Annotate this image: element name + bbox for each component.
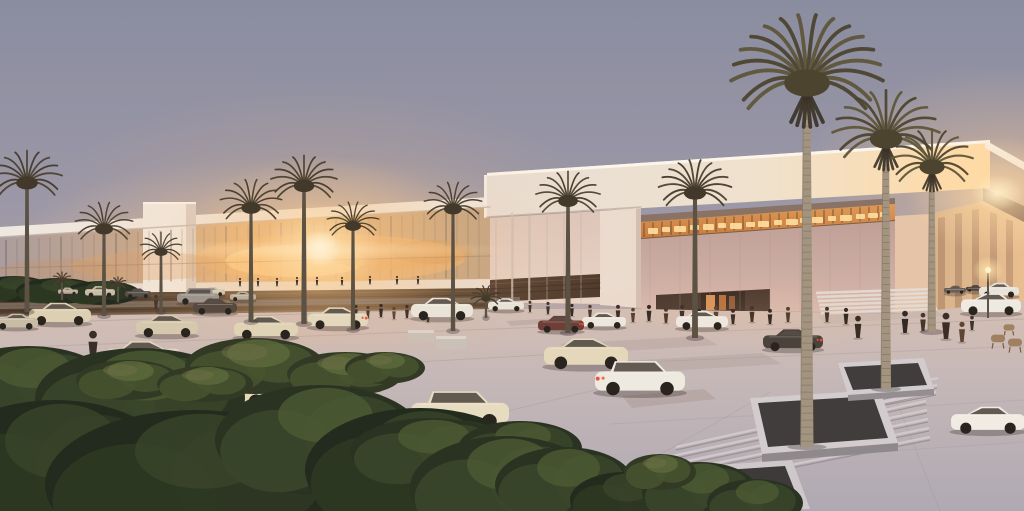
car-wheel <box>89 293 94 298</box>
car-wheel <box>128 294 132 298</box>
person-head <box>276 278 278 280</box>
car-windows <box>187 289 210 293</box>
car-wheel <box>73 292 76 295</box>
person-head <box>680 305 684 309</box>
palm-crown-center <box>241 202 260 214</box>
palm-crown-center <box>482 296 491 301</box>
car-wheel <box>968 289 971 292</box>
taillight <box>581 323 584 326</box>
planter-gravel <box>758 396 888 447</box>
person-head <box>921 313 926 318</box>
person-head <box>89 331 97 339</box>
glow <box>971 175 1023 211</box>
car-wheel <box>456 311 465 320</box>
bush-top <box>736 480 779 504</box>
person-shadow <box>378 317 384 318</box>
window-light <box>786 219 798 225</box>
person-head <box>731 309 735 313</box>
taillight <box>596 377 600 381</box>
person-head <box>902 311 908 317</box>
car-wheel <box>660 382 674 396</box>
mall-sunset-rendering <box>0 0 1024 511</box>
car-wheel <box>683 322 691 330</box>
car-wheel <box>771 342 780 351</box>
palm-crown-center <box>684 186 706 199</box>
bush-rim-light <box>103 364 137 376</box>
car-wheel <box>960 291 963 294</box>
window-light <box>746 222 755 227</box>
person-shadow <box>340 285 344 286</box>
person-shadow <box>256 286 260 287</box>
chair-back <box>1004 324 1015 330</box>
person-head <box>768 309 772 313</box>
person-head <box>970 316 974 320</box>
person-shadow <box>395 284 399 285</box>
scene: Architectural rendering of a modern shop… <box>0 0 1024 511</box>
car-wheel <box>514 306 519 311</box>
car-wheel <box>199 308 206 315</box>
person-shadow <box>730 324 737 326</box>
palm-crown-center <box>154 248 167 256</box>
car-wheel <box>144 328 153 337</box>
palm-crown-center <box>345 221 361 231</box>
car-wheel <box>181 328 190 337</box>
window-light <box>703 224 714 230</box>
person-head <box>366 306 369 309</box>
planter <box>750 390 898 462</box>
palm-crown-center <box>558 195 578 207</box>
person-shadow <box>315 285 319 286</box>
person-shadow <box>391 319 396 320</box>
taillight <box>602 377 605 380</box>
car-wheel <box>493 306 498 311</box>
car-wheel <box>947 291 950 294</box>
window-light <box>758 221 769 227</box>
car-wheel <box>280 330 290 340</box>
person-head <box>316 277 318 279</box>
taillight <box>362 317 364 319</box>
person-head <box>844 308 848 312</box>
car-wheel <box>614 322 621 329</box>
car-wheel <box>242 330 252 340</box>
window-light <box>674 226 686 232</box>
person-head <box>855 316 861 322</box>
person-head <box>396 276 398 278</box>
person-head <box>546 302 549 305</box>
person-head <box>616 305 620 309</box>
palm-trunk <box>159 255 163 312</box>
palm-crown-center <box>95 224 113 235</box>
car-wheel <box>606 382 620 396</box>
person-shadow <box>785 322 792 324</box>
person-head <box>392 307 395 310</box>
lamp-light <box>985 267 991 273</box>
car-wheel <box>555 357 568 370</box>
palm-crown-center <box>115 283 120 286</box>
person-shadow <box>767 324 774 326</box>
palm-crown-center <box>294 180 314 192</box>
palm-crown-center <box>784 69 830 96</box>
window-light <box>774 220 782 225</box>
person-head <box>529 301 532 304</box>
glow <box>120 240 520 260</box>
person-shadow <box>404 318 410 319</box>
person-head <box>570 304 573 307</box>
person-head <box>664 308 668 312</box>
window-light <box>718 223 726 228</box>
chair-back <box>1008 339 1022 347</box>
palm-trunk <box>451 213 456 331</box>
car-wheel <box>74 316 83 325</box>
palm-trunk <box>692 197 698 338</box>
car-wheel <box>144 294 148 298</box>
car-wheel <box>1008 292 1014 298</box>
palm-trunk <box>117 286 119 302</box>
taillight <box>579 323 581 325</box>
person-head <box>825 307 829 311</box>
car-wheel <box>588 322 595 329</box>
bush-rim-light <box>366 355 392 365</box>
car-wheel <box>969 306 978 315</box>
person-head <box>379 304 382 307</box>
car-wheel <box>225 308 232 315</box>
palm-crown-center <box>444 204 462 215</box>
palm-trunk <box>485 301 488 318</box>
car-wheel <box>37 316 46 325</box>
taillight <box>820 339 823 342</box>
person-head <box>154 295 158 299</box>
person-head <box>647 305 651 309</box>
person-head <box>369 276 371 278</box>
window-light <box>868 213 878 218</box>
bush <box>157 366 253 402</box>
bush-rim-light <box>643 458 667 469</box>
person-shadow <box>969 330 975 332</box>
person-shadow <box>528 312 533 313</box>
window-light <box>812 217 823 223</box>
car-wheel <box>419 311 428 320</box>
person-shadow <box>238 286 242 287</box>
window-light <box>730 223 742 229</box>
person-head <box>943 313 950 320</box>
window-light <box>828 216 836 221</box>
person-head <box>631 308 635 312</box>
person-head <box>239 278 241 280</box>
palm-trunk <box>61 282 63 300</box>
bush-rim-light <box>182 370 214 381</box>
bush <box>345 352 425 384</box>
person-shadow <box>295 285 299 286</box>
palm-trunk <box>25 187 30 312</box>
window-light <box>662 227 670 232</box>
person-head <box>714 306 718 310</box>
car-wheel <box>218 292 222 296</box>
car-wheel <box>182 298 188 304</box>
palm-crown-center <box>919 159 944 174</box>
person-head <box>750 306 754 310</box>
person-shadow <box>275 286 279 287</box>
person-head <box>588 305 591 308</box>
car-wheel <box>26 323 33 330</box>
palm-crown-center <box>59 279 65 283</box>
palm-trunk <box>102 233 107 316</box>
car-wheel <box>960 423 971 434</box>
person-shadow <box>663 323 670 325</box>
person-shadow <box>368 284 372 285</box>
person-shadow <box>416 284 420 285</box>
bush <box>624 454 696 490</box>
taillight <box>817 339 819 341</box>
taillight <box>365 317 368 320</box>
person-shadow <box>545 314 550 315</box>
person-head <box>959 322 964 327</box>
palm-crown-center <box>16 177 38 190</box>
car-wheel <box>544 326 551 333</box>
person-head <box>257 278 259 280</box>
person-head <box>417 276 419 278</box>
bush-rim-light <box>221 344 267 361</box>
car-wheel <box>1005 423 1016 434</box>
person-head <box>405 305 408 308</box>
chair-leg <box>1013 331 1014 335</box>
car-wheel <box>316 320 325 329</box>
person-head <box>296 277 298 279</box>
car-wheel <box>233 297 237 301</box>
car-wheel <box>1005 306 1014 315</box>
palm-trunk <box>351 229 356 330</box>
chair-leg <box>1004 331 1005 335</box>
person-shadow <box>824 322 831 324</box>
person-head <box>341 277 343 279</box>
car-wheel <box>714 322 722 330</box>
person-head <box>786 307 790 311</box>
car-wheel <box>107 293 112 298</box>
window-light <box>648 228 658 234</box>
window-light <box>856 214 865 219</box>
person-shadow <box>630 322 636 324</box>
window-light <box>840 215 852 221</box>
chair-back <box>991 335 1005 343</box>
